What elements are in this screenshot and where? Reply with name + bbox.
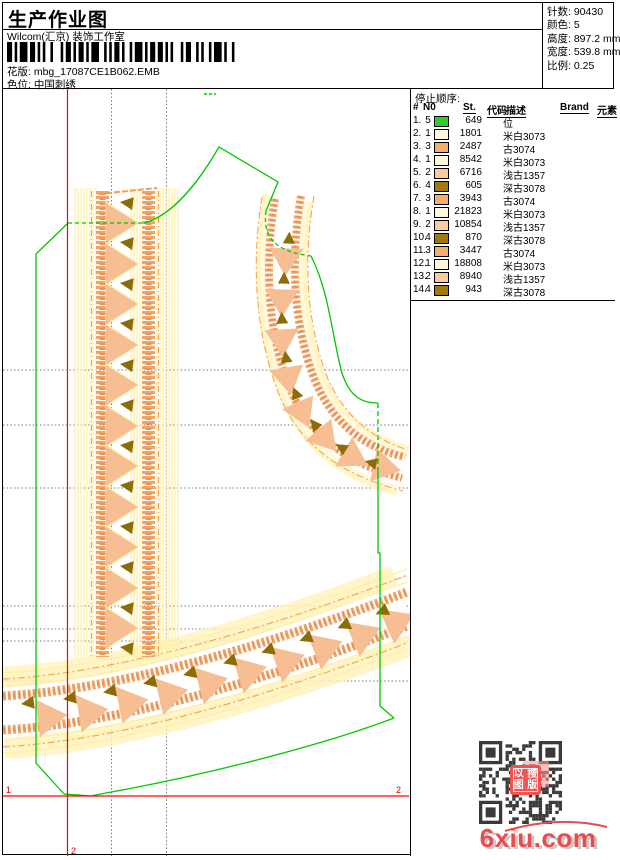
cell-desc: 深古3078	[503, 284, 545, 299]
cell-st: 870	[447, 232, 482, 243]
table-row: 1.5649位	[411, 115, 615, 128]
header-section: 生产作业图 Wilcom(汇京) 装饰工作室 花版: mbg_17087CE1B…	[3, 3, 613, 89]
design-info-box: 针数: 90430 颜色: 5 高度: 897.2 mm 宽度: 539.8 m…	[542, 3, 615, 89]
cell-st: 605	[447, 180, 482, 191]
design-height: 高度: 897.2 mm	[547, 33, 615, 46]
seal-char: 搜	[526, 769, 540, 780]
design-scale: 比例: 0.25	[547, 60, 615, 73]
axis-label: 1	[6, 785, 11, 795]
cell-idx: 6.	[413, 180, 421, 191]
cell-n0: 1	[422, 154, 434, 165]
table-row: 10.4870深古3078	[411, 232, 615, 245]
page-frame: 生产作业图 Wilcom(汇京) 装饰工作室 花版: mbg_17087CE1B…	[2, 2, 614, 855]
cell-st: 8542	[447, 154, 482, 165]
right-panel: 停止顺序: # N0 St. 代码 描述 Brand 元素 1.5649位2.1…	[410, 89, 615, 856]
cell-n0: 3	[422, 245, 434, 256]
cell-n0: 3	[422, 141, 434, 152]
cell-idx: 2.	[413, 128, 421, 139]
page-title: 生产作业图	[8, 5, 108, 32]
table-row: 3.32487古3074	[411, 141, 615, 154]
cell-n0: 2	[422, 167, 434, 178]
table-row: 4.18542米白3073	[411, 154, 615, 167]
red-seal: 以 搜 图 版	[510, 765, 541, 795]
axis-label: 2	[71, 846, 76, 856]
col-header-brand: Brand	[560, 102, 589, 114]
seal-char: 图	[512, 780, 526, 791]
cell-st: 943	[447, 284, 482, 295]
cell-st: 6716	[447, 167, 482, 178]
cell-st: 3447	[447, 245, 482, 256]
cell-idx: 1.	[413, 115, 421, 126]
cell-st: 3943	[447, 193, 482, 204]
table-row: 5.26716浅古1357	[411, 167, 615, 180]
cell-st: 21823	[447, 206, 482, 217]
production-worksheet-page: 生产作业图 Wilcom(汇京) 装饰工作室 花版: mbg_17087CE1B…	[0, 0, 620, 860]
watermark-swoosh	[501, 817, 611, 833]
color-count: 颜色: 5	[547, 19, 615, 32]
table-row: 13.28940浅古1357	[411, 271, 615, 284]
cell-st: 18808	[447, 258, 482, 269]
cell-st: 10854	[447, 219, 482, 230]
cell-idx: 7.	[413, 193, 421, 204]
cell-idx: 5.	[413, 167, 421, 178]
table-row: 12.118808米白3073	[411, 258, 615, 271]
table-row: 2.11801米白3073	[411, 128, 615, 141]
cell-n0: 1	[422, 258, 434, 269]
cell-n0: 1	[422, 128, 434, 139]
seal-char: 版	[526, 780, 540, 791]
seal-char: 以	[512, 769, 526, 780]
cell-n0: 2	[422, 219, 434, 230]
cell-st: 649	[447, 115, 482, 126]
col-header-st: St.	[463, 102, 476, 114]
cell-n0: 3	[422, 193, 434, 204]
cell-n0: 5	[422, 115, 434, 126]
cell-st: 2487	[447, 141, 482, 152]
table-row: 9.210854浅古1357	[411, 219, 615, 232]
table-row: 11.33447古3074	[411, 245, 615, 258]
design-canvas: 122	[3, 89, 410, 856]
stop-sequence-title: 停止顺序:	[415, 91, 460, 106]
cell-n0: 2	[422, 271, 434, 282]
title-cell: 生产作业图	[3, 3, 542, 30]
stitch-count: 针数: 90430	[547, 6, 615, 19]
cell-idx: 8.	[413, 206, 421, 217]
cell-idx: 3.	[413, 141, 421, 152]
barcode	[7, 42, 237, 62]
axis-label: 2	[396, 785, 401, 795]
stop-sequence-table: 停止顺序: # N0 St. 代码 描述 Brand 元素 1.5649位2.1…	[411, 89, 615, 301]
design-width: 宽度: 539.8 mm	[547, 46, 615, 59]
table-row: 8.121823米白3073	[411, 206, 615, 219]
cell-st: 1801	[447, 128, 482, 139]
col-header-n0: N0	[423, 102, 436, 113]
cell-st: 8940	[447, 271, 482, 282]
table-row: 7.33943古3074	[411, 193, 615, 206]
col-header-num: #	[413, 102, 419, 113]
table-row: 14.4943深古3078	[411, 284, 615, 297]
cell-n0: 1	[422, 206, 434, 217]
cell-n0: 4	[422, 232, 434, 243]
cell-n0: 4	[422, 284, 434, 295]
cell-n0: 4	[422, 180, 434, 191]
cell-idx: 4.	[413, 154, 421, 165]
table-row: 6.4605深古3078	[411, 180, 615, 193]
cell-idx: 9.	[413, 219, 421, 230]
